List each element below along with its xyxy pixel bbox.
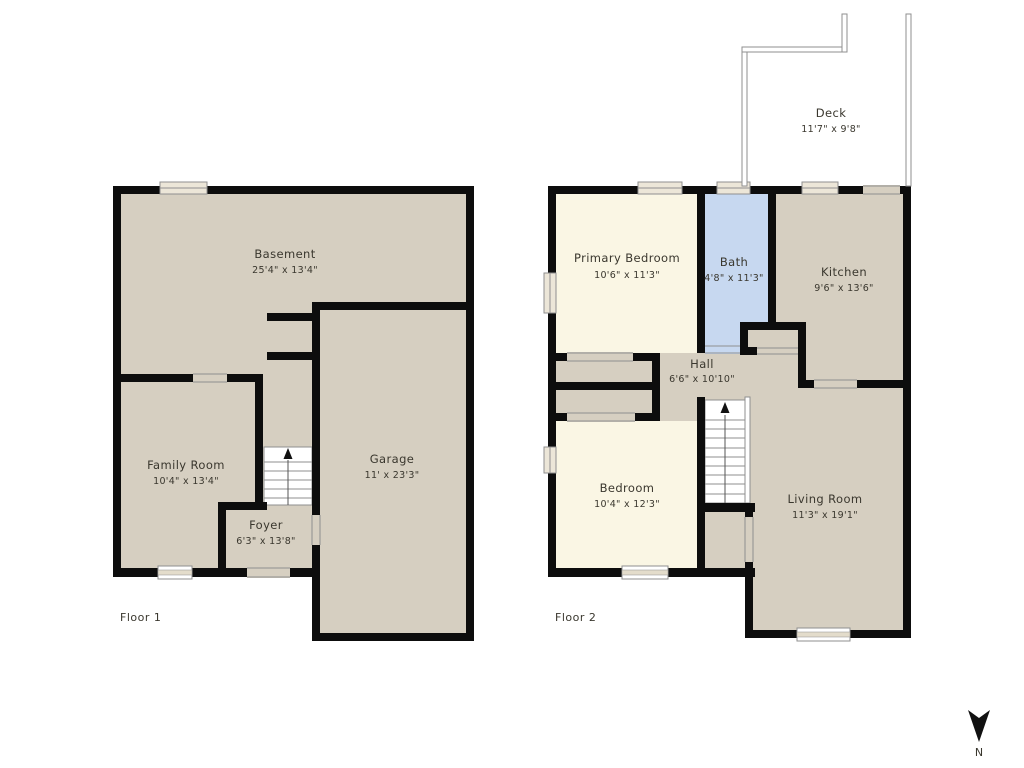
living-room-label: Living Room (788, 492, 863, 506)
window-sash (797, 632, 850, 637)
deck-stair-rail (842, 14, 847, 52)
garage-dims: 11' x 23'3" (365, 470, 420, 481)
window-kitchen-top (802, 182, 838, 194)
window-bedroom-left (544, 447, 556, 473)
basement-label: Basement (254, 247, 315, 261)
floorplan-drawing: Basement 25'4" x 13'4" Family Room 10'4"… (0, 0, 1024, 768)
door-basement-to-family (193, 373, 227, 383)
primary-bedroom-dims: 10'6" x 11'3" (594, 270, 660, 281)
deck-railing-right (906, 14, 911, 186)
wall-kitchen-bottom-left (798, 380, 814, 388)
front-door-opening (247, 567, 290, 578)
bedroom-label: Bedroom (600, 481, 655, 495)
wall-stair-stub-upper (267, 313, 320, 321)
foyer-label: Foyer (249, 518, 283, 532)
wall-stairs-bottom (697, 503, 755, 512)
primary-closet-door (567, 352, 633, 362)
wall-stair-stub-lower (267, 352, 320, 360)
wall-garage-bottom (312, 633, 474, 641)
hall-label: Hall (690, 357, 714, 371)
wall-family-right (255, 374, 263, 510)
deck-railing-top (742, 47, 847, 52)
compass: N (968, 710, 990, 759)
window-bedroom-bottom (622, 566, 668, 579)
door-foyer-to-garage (311, 515, 321, 545)
hall-dims: 6'6" x 10'10" (669, 374, 735, 385)
living-closet-door (744, 517, 754, 562)
floorplan-page: Basement 25'4" x 13'4" Family Room 10'4"… (0, 0, 1024, 768)
wall-bath-bottom (740, 322, 806, 330)
kitchen-dims: 9'6" x 13'6" (814, 283, 873, 294)
floor1: Basement 25'4" x 13'4" Family Room 10'4"… (113, 182, 474, 641)
floor2: Primary Bedroom 10'6" x 11'3" Bath 4'8" … (544, 14, 911, 641)
basement-dims: 25'4" x 13'4" (252, 265, 318, 276)
north-arrow-icon (968, 710, 990, 742)
wall-f2-right (903, 186, 911, 638)
wall-basement-family-divider (113, 374, 263, 382)
bedroom-closet-door (567, 412, 635, 422)
primary-bedroom-label: Primary Bedroom (574, 251, 680, 265)
wall-garage-top (312, 302, 474, 310)
kitchen-label: Kitchen (821, 265, 867, 279)
window-primary-left (544, 273, 556, 313)
wall-foyer-left (218, 502, 226, 577)
window-sash (158, 570, 192, 575)
wall-hall-doorway-stub (740, 347, 757, 355)
wall-bath-kitchen-divider (768, 194, 776, 330)
deck-label: Deck (816, 106, 847, 120)
wall-f1-right (466, 186, 474, 641)
kitchen-opening (814, 379, 857, 389)
bath-label: Bath (720, 255, 748, 269)
foyer-dims: 6'3" x 13'8" (236, 536, 295, 547)
wall-kitchen-divider (798, 322, 806, 388)
deck-railing-left (742, 47, 747, 186)
bedroom-dims: 10'4" x 12'3" (594, 499, 660, 510)
family-room-label: Family Room (147, 458, 225, 472)
bath-door (705, 344, 740, 354)
bath-fill-lower (705, 322, 740, 347)
floor1-stairs (264, 447, 312, 505)
living-room-dims: 11'3" x 19'1" (792, 510, 858, 521)
floor2-stairs (705, 397, 750, 503)
window-basement-top (160, 182, 207, 194)
deck-sliding-door (863, 185, 900, 195)
deck (742, 14, 911, 186)
floor1-caption: Floor 1 (120, 611, 161, 624)
wall-closet-divider (548, 382, 660, 390)
bath-dims: 4'8" x 11'3" (704, 273, 763, 284)
window-primary-top (638, 182, 682, 194)
window-family-bottom (158, 566, 192, 579)
garage-label: Garage (370, 452, 415, 466)
family-room-dims: 10'4" x 13'4" (153, 476, 219, 487)
wall-kitchen-bottom-right (857, 380, 911, 388)
stair-railing (745, 397, 750, 503)
deck-dims: 11'7" x 9'8" (801, 124, 860, 135)
window-sash (622, 570, 668, 575)
floor2-exterior-mask (548, 577, 745, 638)
door-gap (247, 567, 290, 578)
floor2-caption: Floor 2 (555, 611, 596, 624)
hall-closet-door (757, 346, 798, 356)
north-label: N (975, 746, 983, 759)
wall-stairs-left (697, 397, 705, 577)
wall-f2-left (548, 186, 556, 577)
wall-closet-right (652, 353, 660, 421)
window-living-bottom (797, 628, 850, 641)
